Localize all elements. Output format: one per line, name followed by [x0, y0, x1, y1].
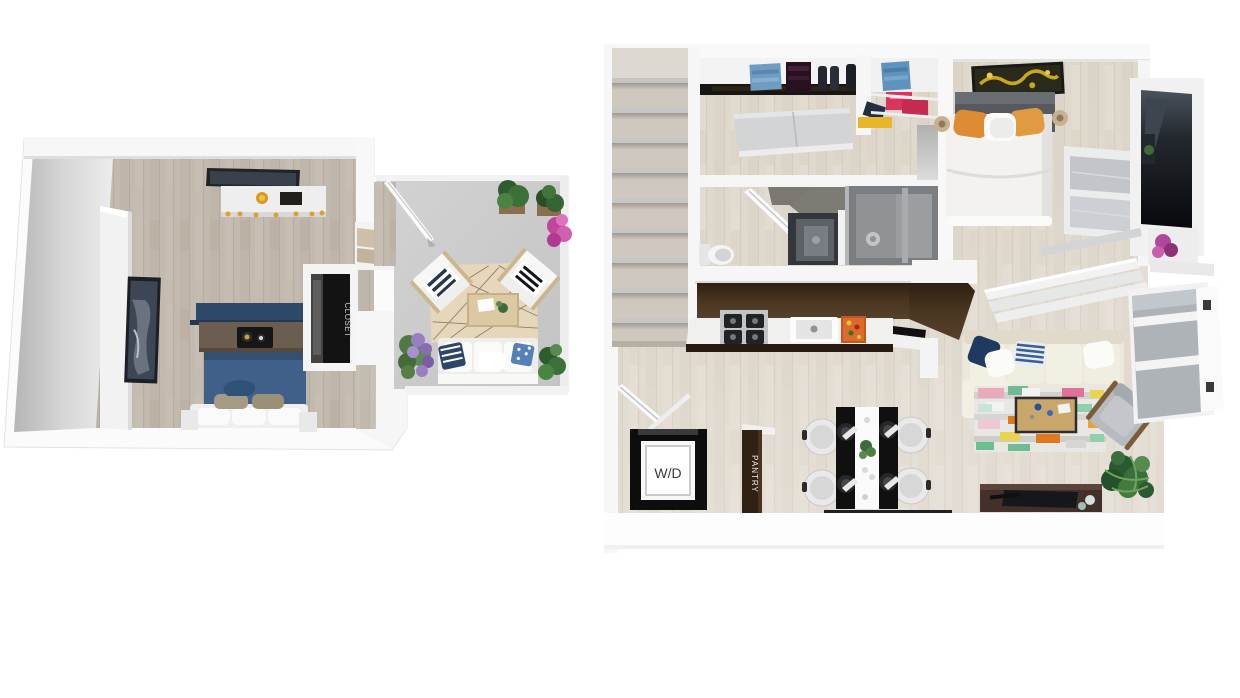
svg-text:W/D: W/D: [654, 465, 681, 481]
svg-text:CLOSET: CLOSET: [343, 302, 352, 337]
svg-text:PANTRY: PANTRY: [750, 455, 759, 493]
